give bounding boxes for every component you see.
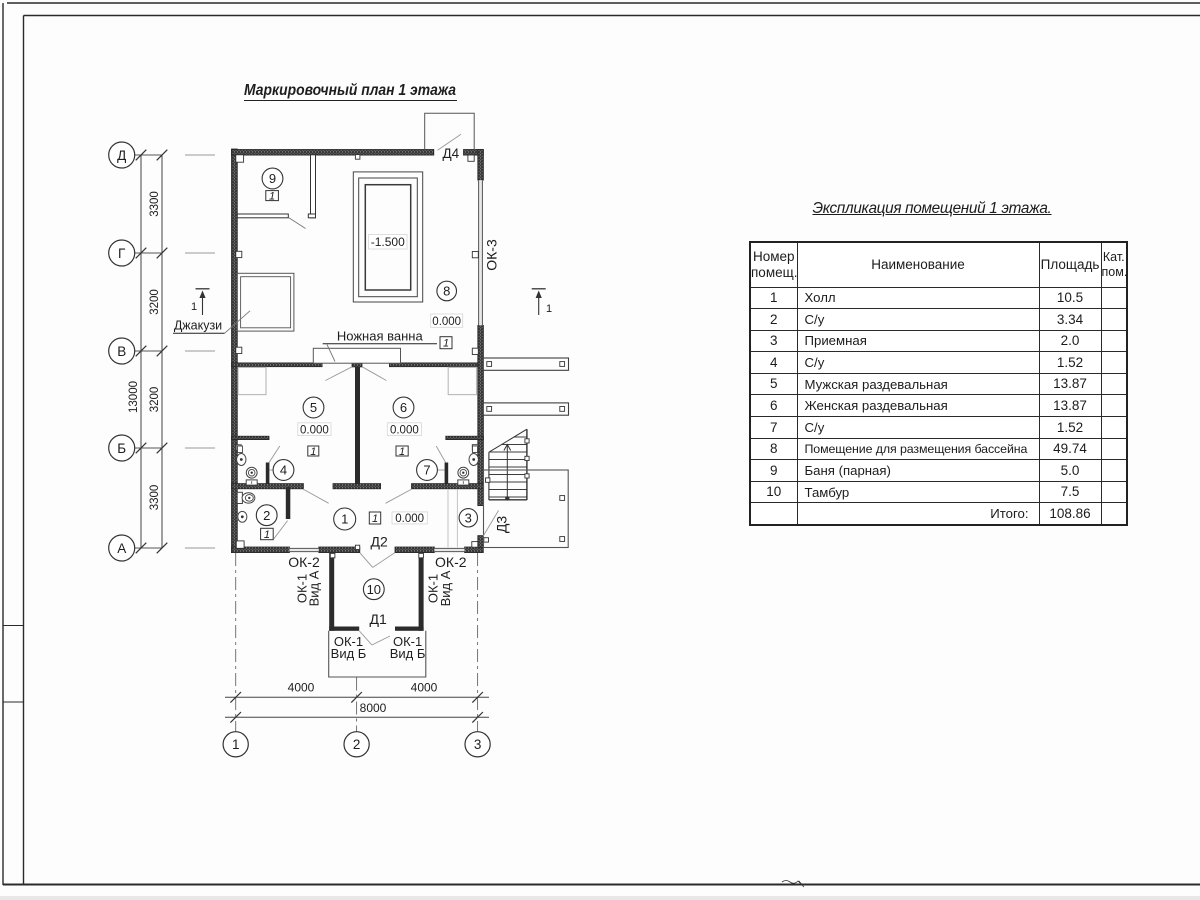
svg-text:0.000: 0.000	[395, 513, 424, 525]
svg-text:Вид А: Вид А	[307, 570, 322, 606]
svg-text:Б: Б	[117, 441, 126, 456]
svg-text:Джакузи: Джакузи	[174, 319, 222, 333]
svg-text:Г: Г	[118, 246, 126, 261]
svg-text:ОК-2: ОК-2	[435, 554, 467, 570]
svg-text:1: 1	[264, 529, 270, 541]
svg-text:1: 1	[310, 446, 316, 458]
svg-text:4: 4	[280, 463, 287, 478]
svg-text:Д2: Д2	[371, 533, 388, 549]
svg-text:8: 8	[443, 284, 450, 299]
svg-text:1: 1	[191, 301, 197, 313]
svg-text:ОК-2: ОК-2	[288, 554, 320, 570]
svg-text:1: 1	[341, 512, 348, 527]
svg-text:0.000: 0.000	[390, 424, 419, 436]
svg-text:8000: 8000	[360, 701, 387, 715]
svg-text:9: 9	[269, 171, 276, 186]
svg-text:10: 10	[367, 582, 381, 597]
svg-text:13000: 13000	[128, 381, 140, 413]
svg-text:4000: 4000	[288, 681, 315, 695]
svg-text:2: 2	[353, 737, 361, 752]
svg-text:7: 7	[423, 463, 430, 478]
svg-text:Вид Б: Вид Б	[331, 646, 367, 661]
svg-text:3300: 3300	[149, 485, 161, 511]
svg-text:1: 1	[269, 191, 275, 203]
svg-text:Маркировочный план 1 этажа: Маркировочный план 1 этажа	[244, 82, 456, 99]
svg-text:1: 1	[546, 303, 552, 315]
svg-text:Д1: Д1	[370, 611, 387, 627]
svg-text:Д4: Д4	[442, 146, 459, 161]
svg-text:Вид Б: Вид Б	[390, 646, 426, 661]
svg-text:А: А	[117, 541, 126, 556]
svg-text:6: 6	[400, 400, 407, 415]
svg-text:3200: 3200	[149, 387, 161, 413]
svg-text:1: 1	[399, 446, 405, 458]
svg-text:3300: 3300	[149, 191, 161, 217]
svg-text:Д3: Д3	[494, 516, 510, 533]
svg-text:1: 1	[372, 513, 378, 525]
svg-text:Вид А: Вид А	[438, 570, 453, 606]
svg-text:0.000: 0.000	[432, 316, 461, 328]
svg-text:4000: 4000	[411, 681, 438, 695]
svg-text:2: 2	[263, 508, 270, 523]
svg-text:Ножная ванна: Ножная ванна	[337, 329, 424, 344]
svg-text:1: 1	[232, 737, 240, 752]
svg-text:В: В	[117, 344, 126, 359]
svg-text:Д: Д	[117, 148, 126, 163]
svg-text:1: 1	[443, 338, 449, 350]
svg-text:3: 3	[465, 510, 472, 525]
svg-text:-1.500: -1.500	[371, 235, 405, 249]
svg-text:ОК-3: ОК-3	[484, 239, 500, 271]
svg-text:0.000: 0.000	[300, 424, 329, 436]
svg-text:5: 5	[310, 400, 317, 415]
svg-text:3: 3	[474, 737, 482, 752]
svg-text:3200: 3200	[149, 289, 161, 315]
